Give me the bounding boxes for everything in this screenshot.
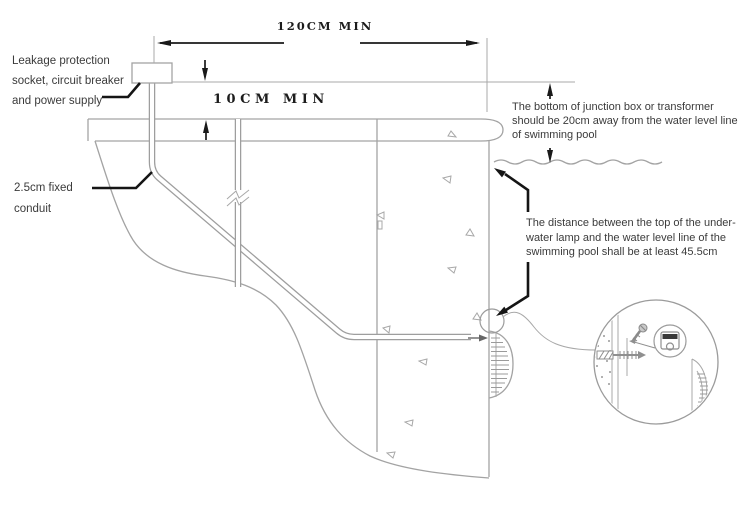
leakage-protection-label: Leakage protection socket, circuit break… [12,51,124,111]
water-level-line [494,160,662,164]
lamp-top-arrow [496,262,528,316]
detail-circle [594,300,718,424]
fixed-conduit [152,83,471,337]
underwater-lamp [480,309,513,398]
conduit-label-line1: 2.5cm fixed [14,178,73,199]
leakage-label-line2: socket, circuit breaker [12,71,124,91]
junction-box [132,63,172,83]
conduit-label-line2: conduit [14,199,73,220]
ground-excavation-curve [95,141,489,478]
junction-box-note: The bottom of junction box or transforme… [512,100,738,142]
junction-box-note-line2: should be 20cm away from the water level… [512,114,738,128]
fixed-conduit-label: 2.5cm fixed conduit [14,178,73,220]
lamp-grill-hatch [491,338,509,392]
lamp-note-line3: swimming pool shall be at least 45.5cm [526,245,736,260]
pool-lamp-installation-diagram: Leakage protection socket, circuit break… [0,0,750,512]
leakage-label-line3: and power supply [12,91,124,111]
lamp-note-line1: The distance between the top of the unde… [526,216,736,231]
detail-leader-curve [503,312,596,350]
concrete-triangle-symbols [377,131,481,458]
vertical-conduit [227,119,250,287]
junction-box-note-line1: The bottom of junction box or transforme… [512,100,738,114]
dimension-120cm-text: 120CM MIN [270,19,380,33]
conduit-leader-line [92,172,152,188]
lamp-note-line2: water lamp and the water level line of t… [526,231,736,246]
junction-box-note-line3: of swimming pool [512,128,738,142]
pipe-break-symbol [227,190,250,206]
leakage-label-line1: Leakage protection [12,51,124,71]
pool-wall [377,119,489,477]
waterline-arrow [494,168,528,212]
dimension-10cm [202,60,209,140]
lamp-distance-note: The distance between the top of the unde… [526,216,736,260]
dimension-10cm-text: 10CM MIN [213,92,329,107]
